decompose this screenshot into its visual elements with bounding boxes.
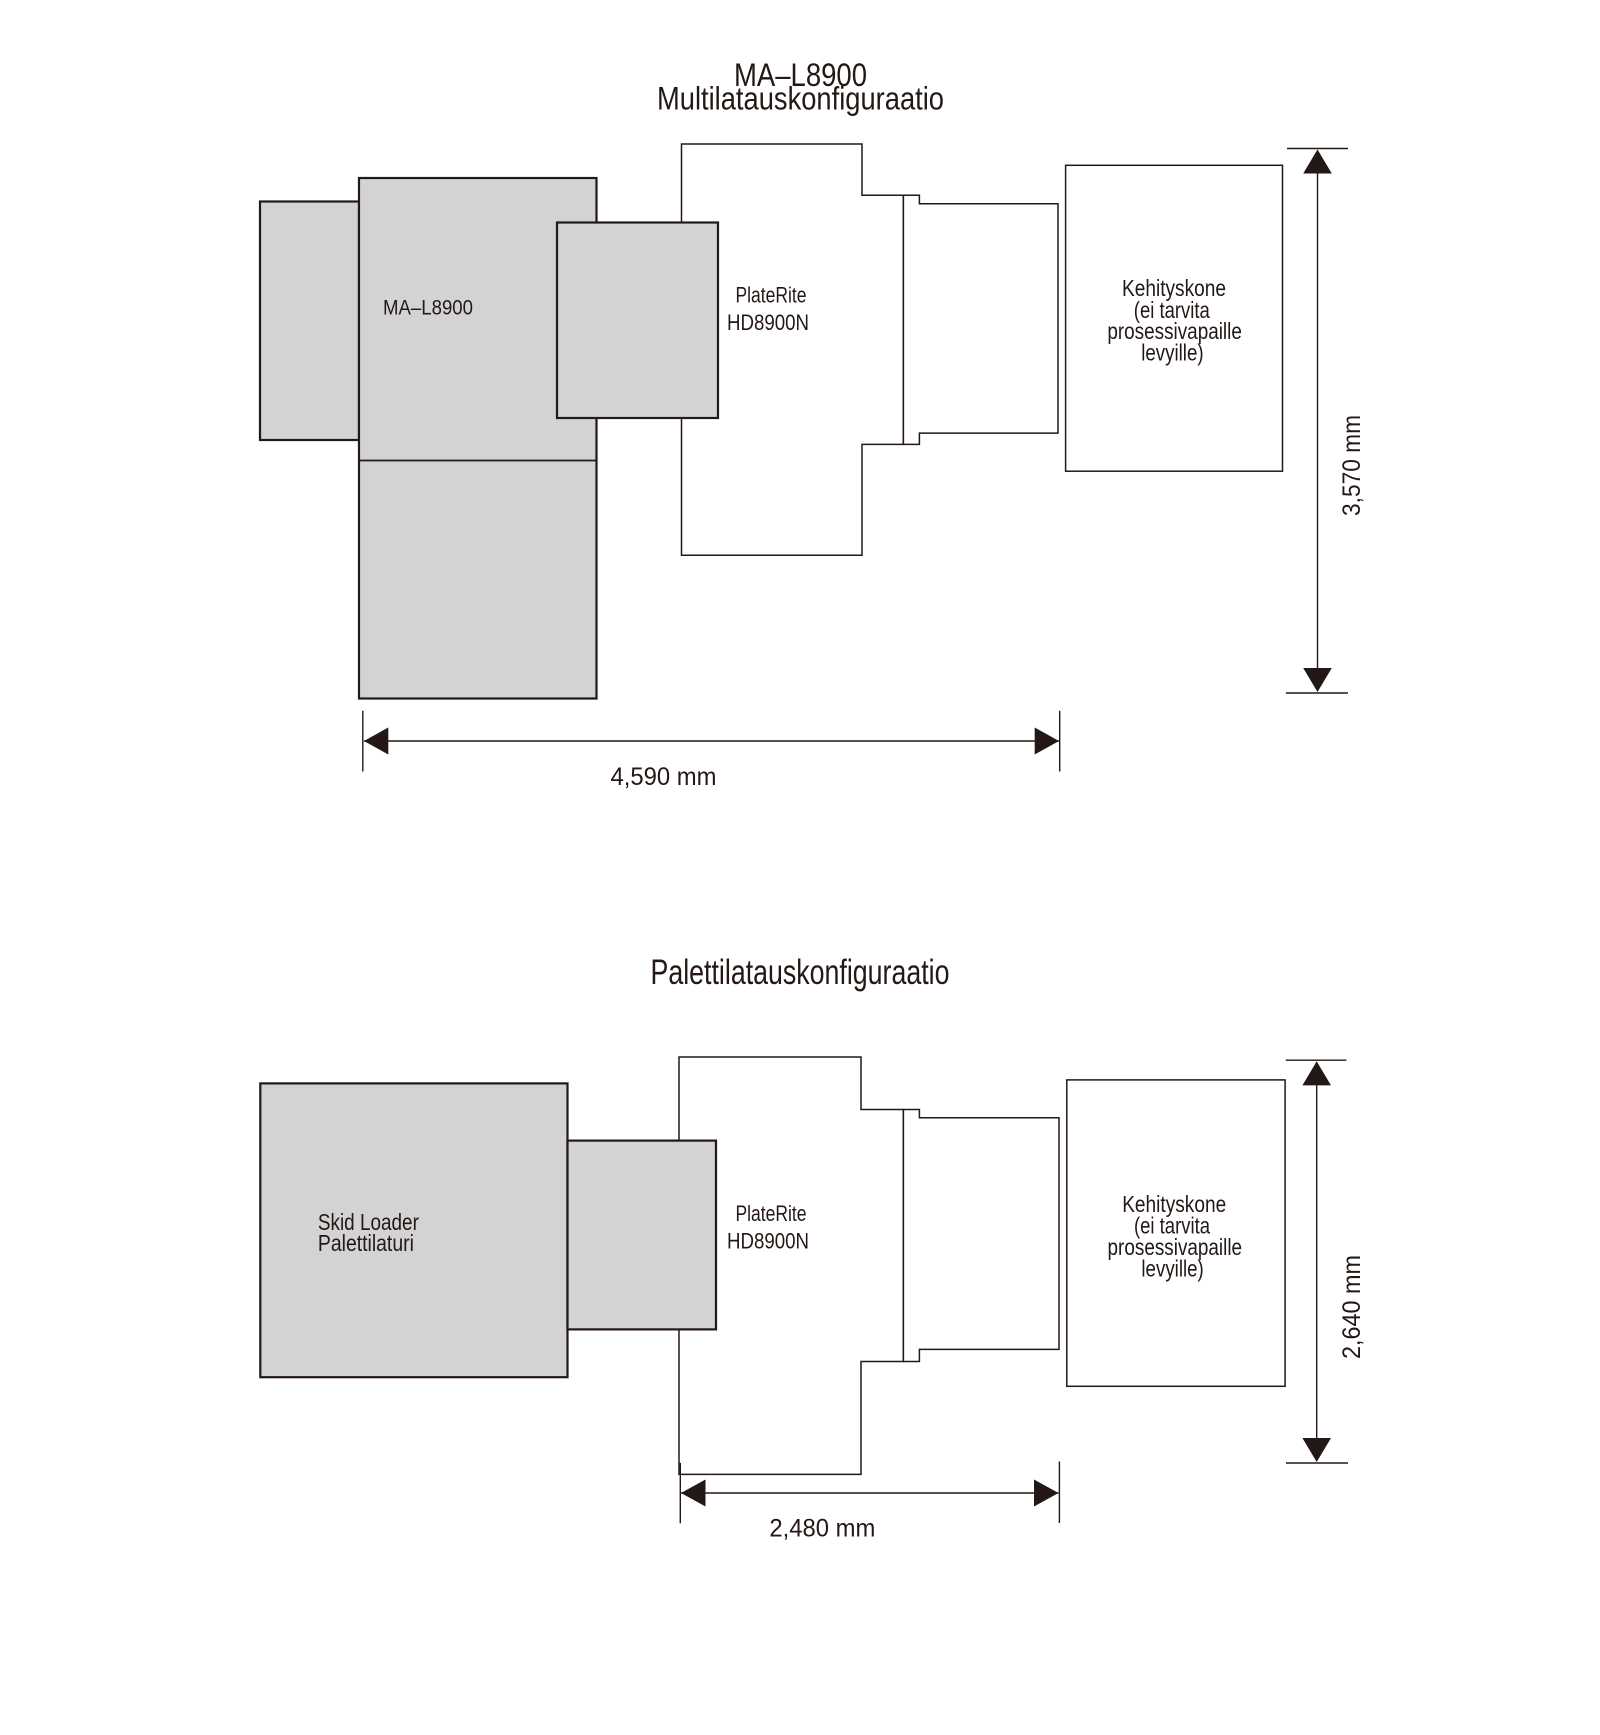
svg-text:3,570 mm: 3,570 mm (1338, 415, 1366, 516)
svg-text:2,640 mm: 2,640 mm (1338, 1255, 1366, 1359)
svg-text:PlateRite: PlateRite (736, 1201, 807, 1226)
svg-text:HD8900N: HD8900N (727, 1228, 809, 1253)
svg-text:2,480 mm: 2,480 mm (769, 1515, 875, 1543)
svg-text:PlateRite: PlateRite (736, 283, 807, 308)
svg-text:levyille): levyille) (1141, 340, 1203, 366)
svg-text:HD8900N: HD8900N (727, 310, 809, 335)
svg-text:MA–L8900: MA–L8900 (383, 296, 473, 320)
svg-text:4,590 mm: 4,590 mm (611, 763, 717, 791)
svg-text:levyille): levyille) (1141, 1255, 1203, 1281)
svg-text:Palettilaturi: Palettilaturi (318, 1230, 414, 1256)
svg-text:Multilatauskonfiguraatio: Multilatauskonfiguraatio (657, 81, 944, 117)
svg-text:Palettilatauskonfiguraatio: Palettilatauskonfiguraatio (651, 953, 950, 992)
